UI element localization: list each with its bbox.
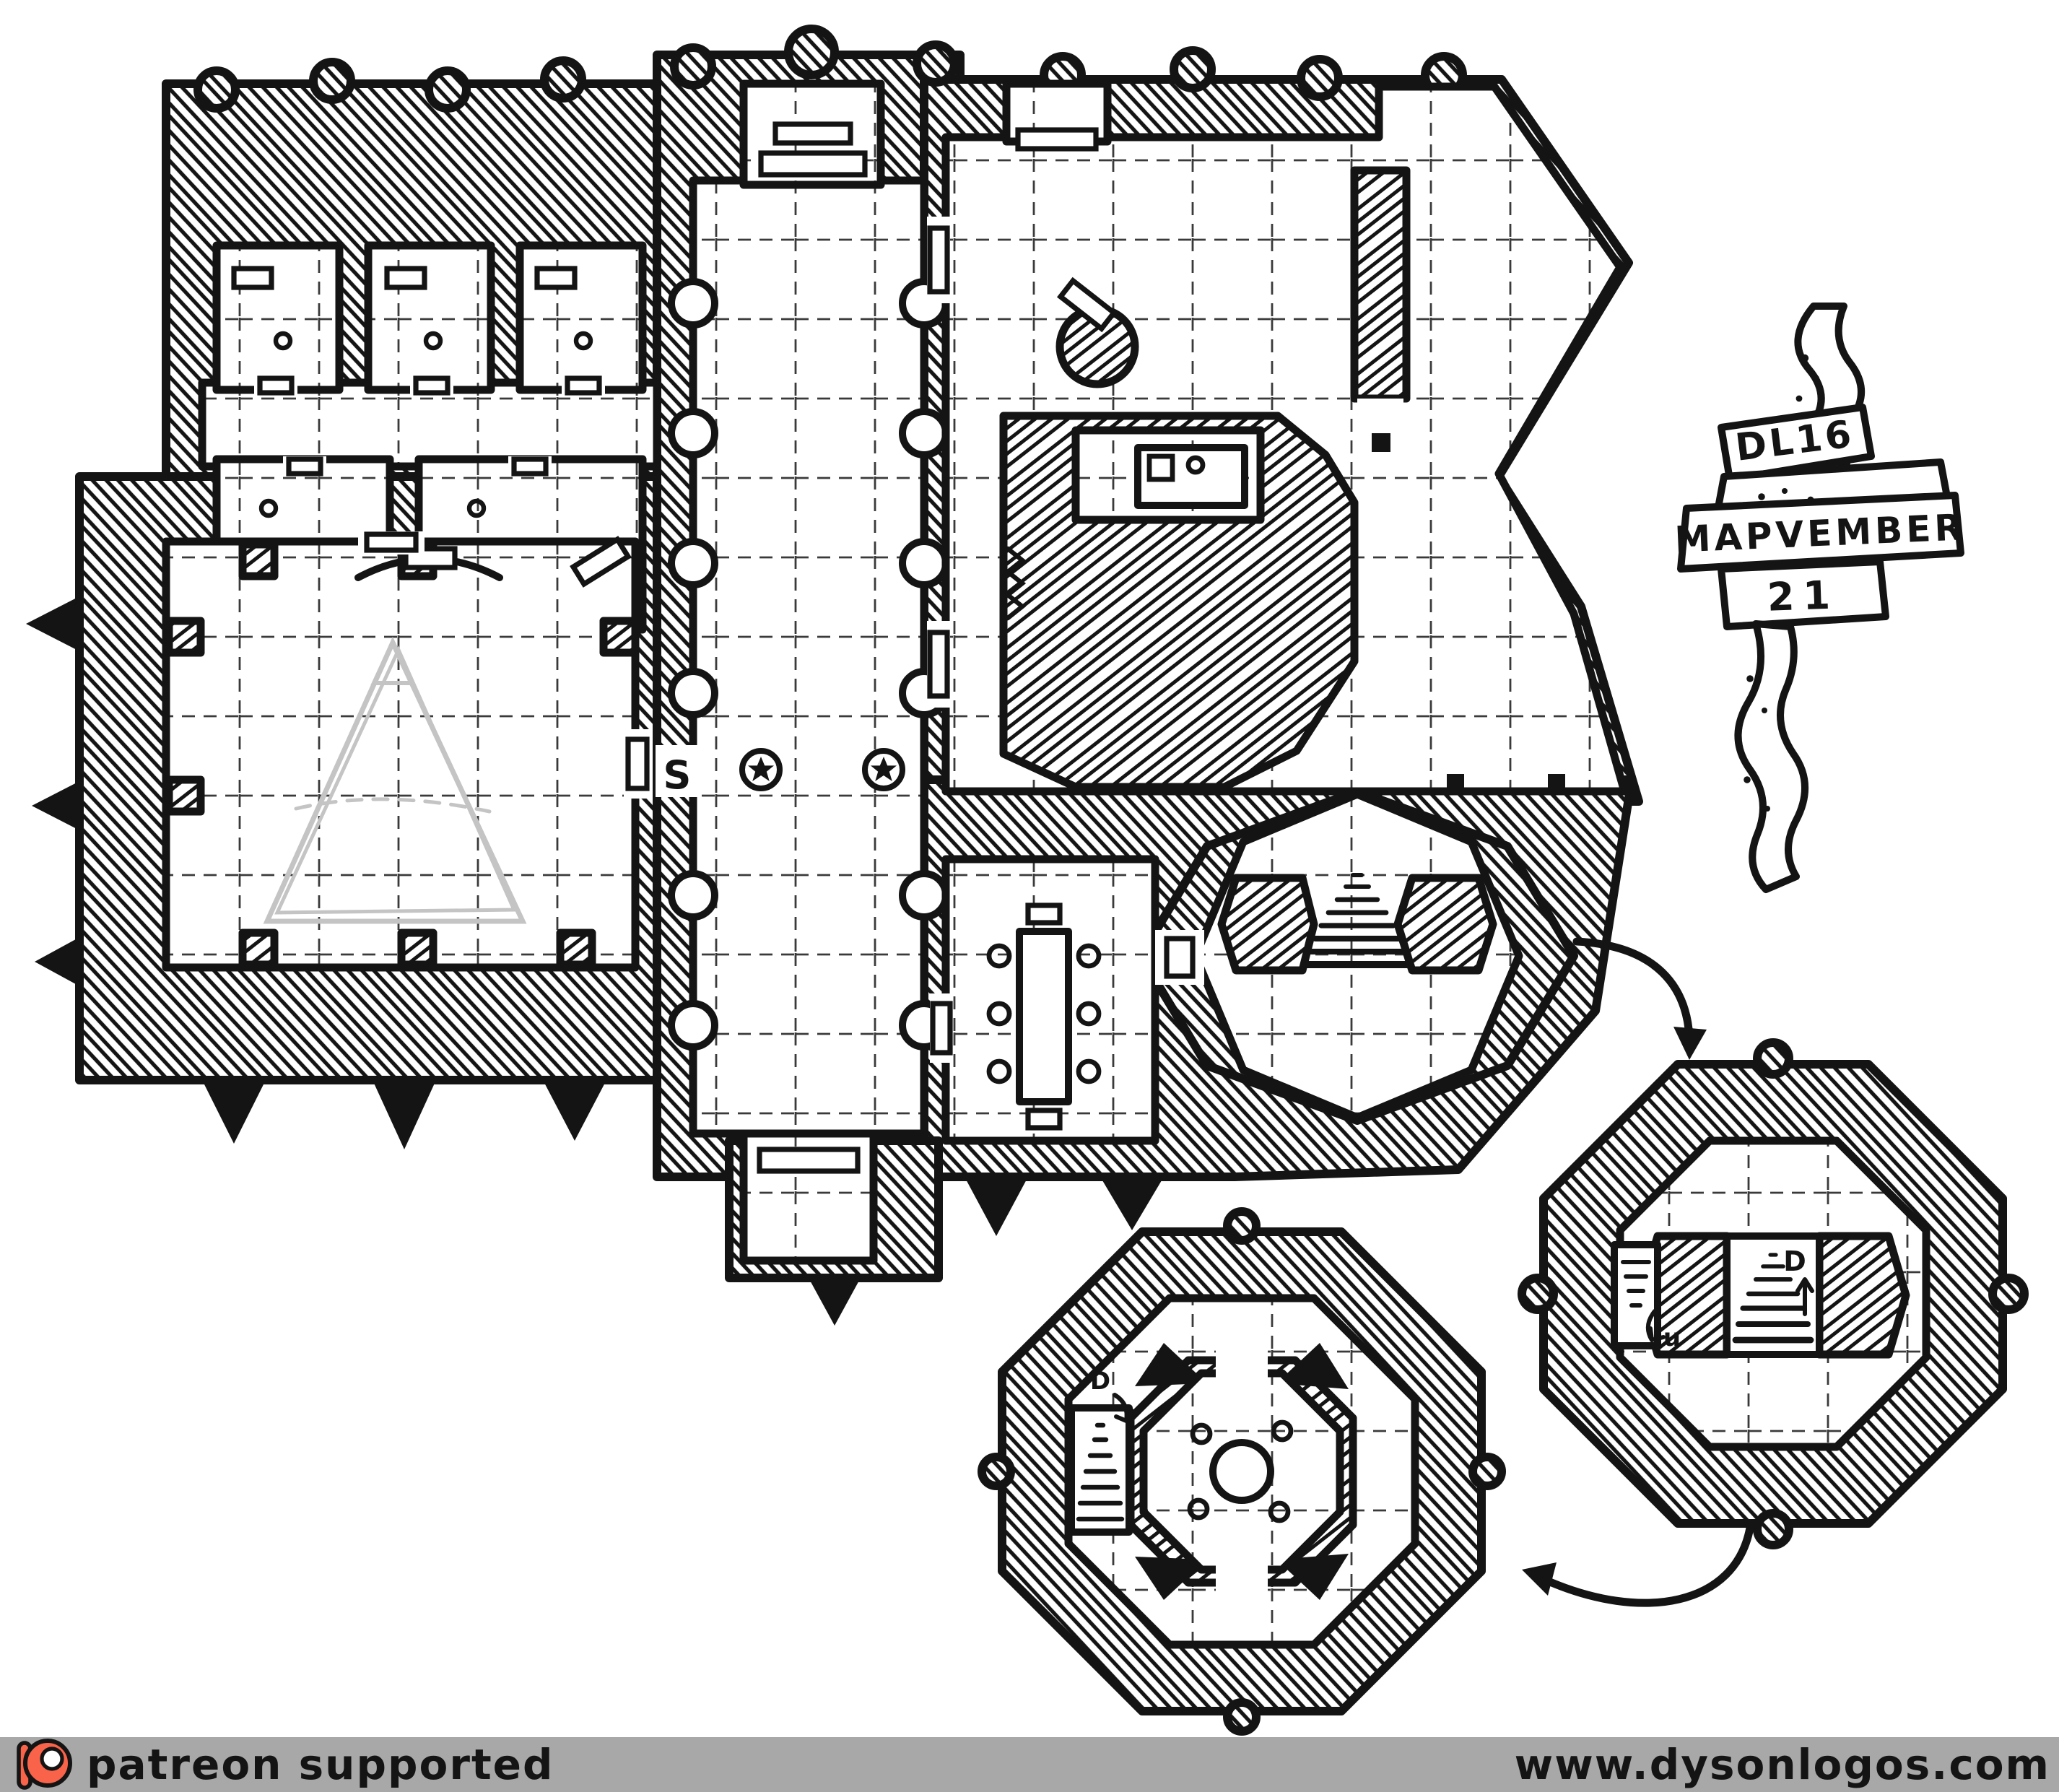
arrow-head-icon	[1673, 1027, 1707, 1060]
website-label: www.dysonlogos.com	[1515, 1740, 2050, 1789]
stairs-down-label-2: D	[1090, 1367, 1110, 1396]
pentagram-pillar-icon	[865, 751, 902, 788]
table-room	[930, 859, 1155, 1141]
lower-level-octagon-2: D	[982, 1212, 1502, 1731]
mapvember-ribbon: DL16 MAPVEMBER 21	[1673, 306, 1967, 890]
patreon-supported-label: patreon supported	[87, 1740, 554, 1789]
dungeon-map-page: S	[0, 0, 2059, 1792]
altar-island	[1004, 416, 1354, 787]
footer-bar: patreon supported www.dysonlogos.com	[0, 1737, 2059, 1792]
dungeon-map: S	[0, 0, 2059, 1792]
secret-door-label: S	[663, 752, 692, 798]
lower-level-octagon-1: D u	[1522, 1043, 2024, 1545]
pentagram-pillar-icon	[742, 751, 780, 788]
ritual-chamber	[166, 531, 653, 967]
ribbon-day: 21	[1767, 572, 1840, 619]
stairs-up-label: u	[1663, 1323, 1681, 1352]
pillar-hall: S	[656, 84, 946, 1261]
patreon-logo-icon	[19, 1741, 70, 1788]
stairs-down-label: D	[1783, 1245, 1806, 1277]
long-table	[1019, 931, 1068, 1102]
arrow-head-icon	[1522, 1562, 1557, 1596]
